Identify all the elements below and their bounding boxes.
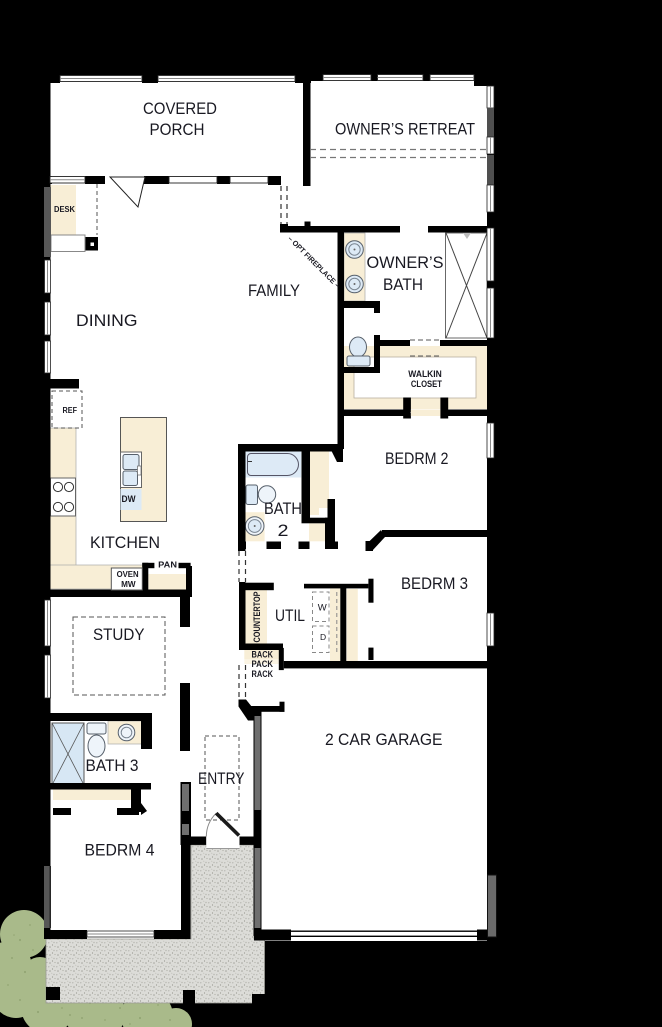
svg-text:BEDRM 2: BEDRM 2 (385, 450, 449, 468)
svg-text:D: D (320, 632, 326, 642)
svg-text:CLOSET: CLOSET (411, 379, 442, 390)
svg-text:BATH 3: BATH 3 (86, 757, 139, 775)
svg-text:REF: REF (63, 406, 78, 415)
svg-text:BATH: BATH (383, 276, 423, 294)
svg-text:2: 2 (278, 522, 289, 540)
svg-text:PACK: PACK (252, 659, 274, 669)
svg-text:BEDRM 4: BEDRM 4 (85, 842, 155, 860)
svg-text:W: W (318, 602, 327, 613)
svg-text:OVEN: OVEN (117, 569, 139, 579)
svg-text:UTIL: UTIL (275, 607, 305, 625)
svg-text:OWNER’S: OWNER’S (367, 254, 444, 272)
svg-text:COUNTERTOP: COUNTERTOP (252, 592, 262, 643)
svg-text:DESK: DESK (54, 205, 75, 214)
svg-text:BEDRM 3: BEDRM 3 (401, 575, 468, 593)
svg-text:COVERED: COVERED (143, 100, 217, 118)
svg-text:RACK: RACK (252, 669, 274, 679)
svg-text:STUDY: STUDY (93, 626, 145, 644)
svg-text:KITCHEN: KITCHEN (90, 534, 160, 552)
svg-text:OWNER’S RETREAT: OWNER’S RETREAT (335, 121, 475, 139)
svg-text:PORCH: PORCH (150, 121, 205, 139)
svg-text:DW: DW (122, 494, 136, 504)
svg-text:DINING: DINING (76, 312, 138, 330)
svg-text:BATH: BATH (264, 500, 302, 518)
svg-text:ENTRY: ENTRY (198, 770, 245, 788)
svg-text:2 CAR GARAGE: 2 CAR GARAGE (325, 731, 443, 749)
svg-text:PAN: PAN (158, 559, 177, 569)
svg-text:FAMILY: FAMILY (248, 282, 300, 300)
svg-text:MW: MW (121, 579, 136, 589)
